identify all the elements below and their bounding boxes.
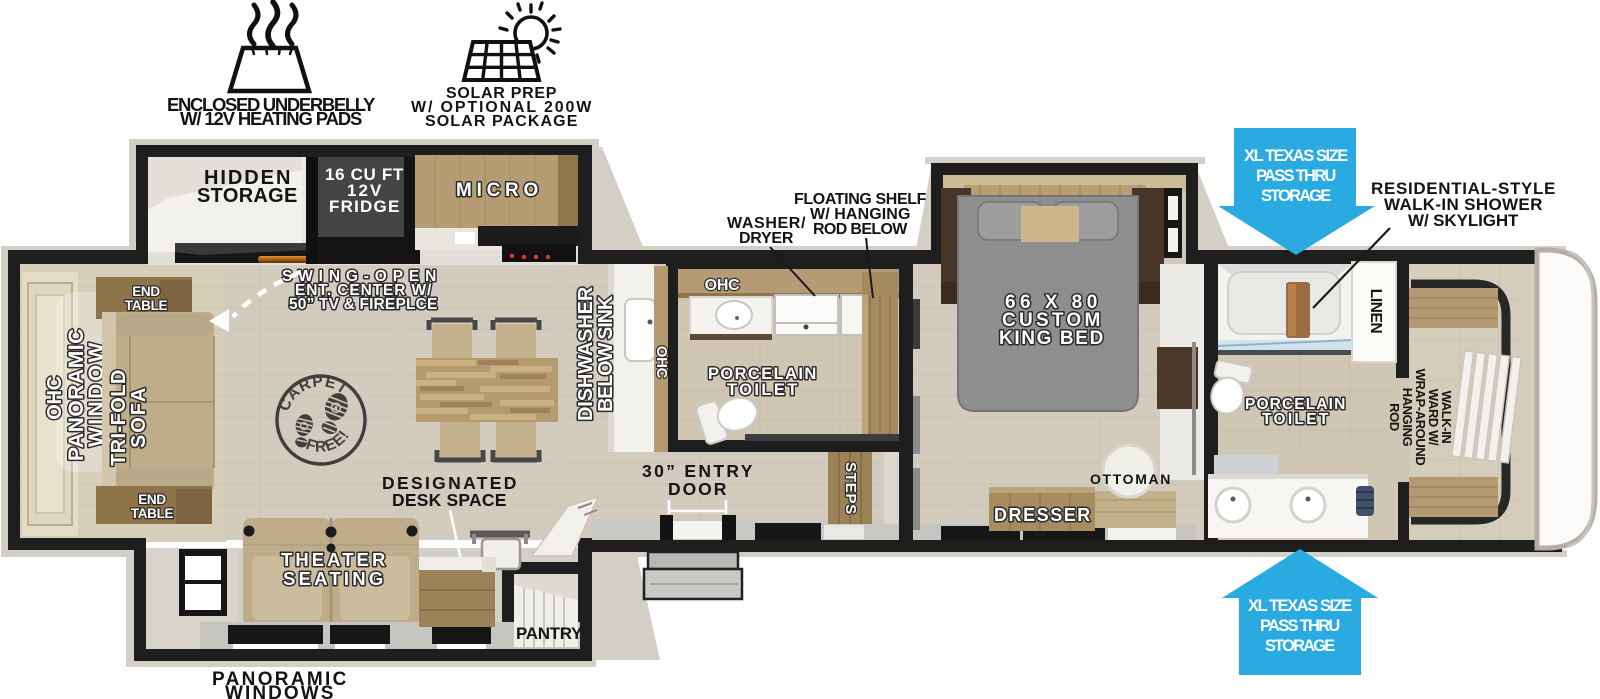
svg-text:DRYER: DRYER: [739, 230, 794, 247]
svg-text:PASS THRU: PASS THRU: [1260, 617, 1340, 635]
svg-text:DISHWASHER: DISHWASHER: [575, 286, 597, 421]
svg-text:ROD: ROD: [1387, 403, 1402, 431]
svg-text:TABLE: TABLE: [131, 506, 174, 521]
svg-text:ROD BELOW: ROD BELOW: [813, 221, 908, 238]
svg-text:STORAGE: STORAGE: [1261, 187, 1331, 205]
svg-text:STEPS: STEPS: [842, 462, 859, 514]
svg-text:OTTOMAN: OTTOMAN: [1090, 471, 1170, 487]
svg-text:STORAGE: STORAGE: [1265, 637, 1335, 655]
svg-text:STORAGE: STORAGE: [197, 185, 297, 207]
svg-text:DESK SPACE: DESK SPACE: [392, 490, 506, 510]
svg-text:KING BED: KING BED: [999, 328, 1103, 349]
svg-text:TABLE: TABLE: [125, 298, 168, 313]
svg-text:BELOW SINK: BELOW SINK: [595, 295, 617, 412]
svg-text:OHC: OHC: [44, 376, 66, 420]
svg-text:OHC: OHC: [653, 346, 670, 379]
svg-text:DOOR: DOOR: [668, 479, 727, 499]
svg-text:SEATING: SEATING: [283, 568, 383, 589]
svg-text:END: END: [138, 492, 166, 507]
svg-text:XL TEXAS SIZE: XL TEXAS SIZE: [1244, 147, 1348, 165]
svg-text:W/ 12V HEATING PADS: W/ 12V HEATING PADS: [180, 108, 362, 129]
svg-text:XL TEXAS SIZE: XL TEXAS SIZE: [1248, 597, 1352, 615]
svg-text:TRI-FOLD: TRI-FOLD: [108, 370, 130, 466]
svg-text:W/ SKYLIGHT: W/ SKYLIGHT: [1408, 211, 1519, 230]
svg-text:OHC: OHC: [705, 277, 740, 294]
svg-text:END: END: [132, 284, 160, 299]
svg-text:SOFA: SOFA: [128, 388, 150, 448]
svg-text:LINEN: LINEN: [1367, 289, 1384, 334]
svg-text:PASS THRU: PASS THRU: [1256, 167, 1336, 185]
svg-text:MICRO: MICRO: [456, 180, 538, 201]
svg-text:WINDOWS: WINDOWS: [225, 683, 333, 699]
svg-text:PANTRY: PANTRY: [516, 624, 583, 643]
svg-text:50” TV & FIREPLCE: 50” TV & FIREPLCE: [289, 296, 437, 313]
